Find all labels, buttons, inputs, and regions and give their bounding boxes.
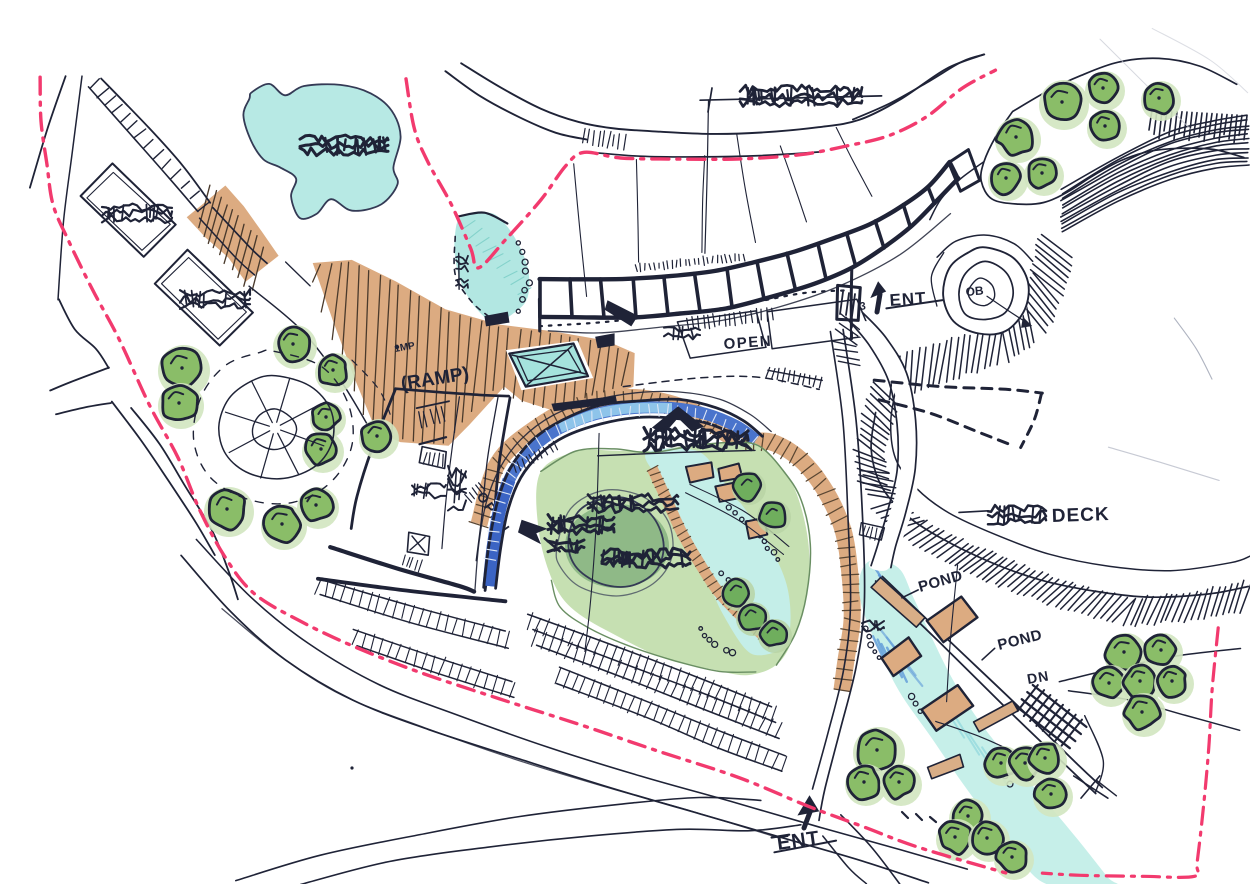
svg-text:DECK: DECK: [1051, 504, 1110, 527]
svg-text:3: 3: [859, 300, 866, 313]
svg-text:OB: OB: [965, 283, 984, 299]
svg-text:OPEN: OPEN: [723, 333, 773, 353]
